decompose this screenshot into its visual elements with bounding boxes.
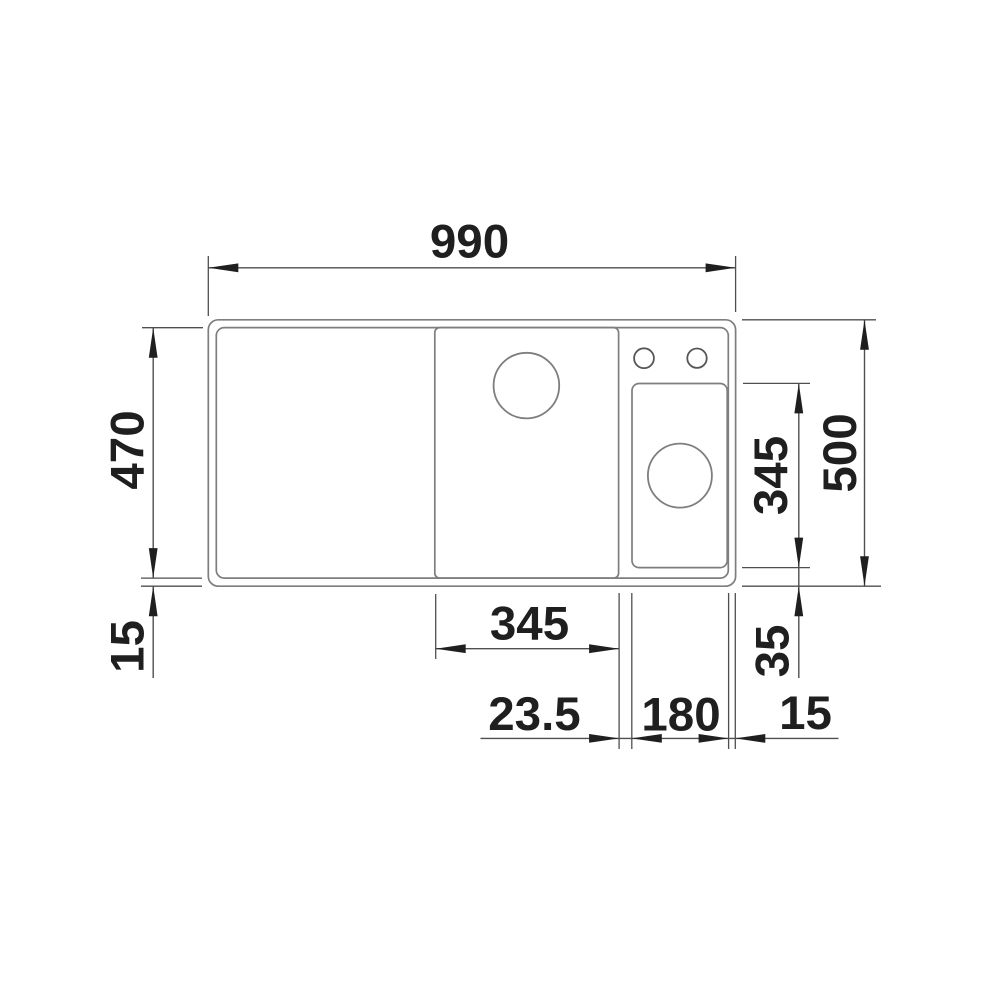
svg-text:990: 990	[430, 216, 509, 269]
svg-text:500: 500	[814, 413, 867, 492]
svg-text:180: 180	[641, 689, 720, 742]
svg-text:15: 15	[102, 620, 155, 673]
svg-text:470: 470	[101, 410, 154, 489]
svg-text:35: 35	[747, 625, 800, 678]
svg-text:345: 345	[745, 436, 798, 515]
svg-text:23.5: 23.5	[488, 688, 580, 741]
svg-text:345: 345	[490, 598, 569, 651]
svg-text:15: 15	[779, 687, 832, 740]
